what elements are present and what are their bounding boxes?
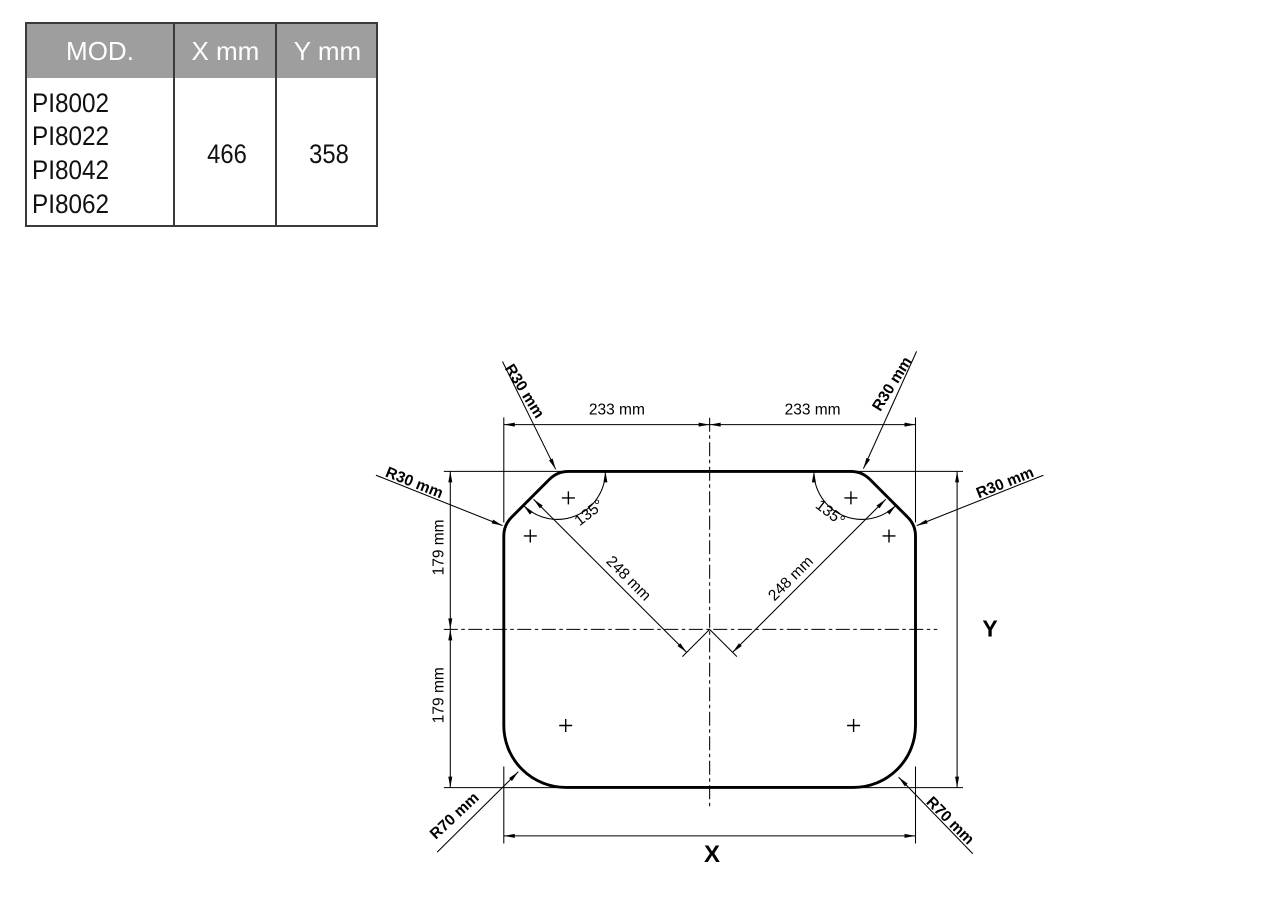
svg-text:X: X bbox=[704, 841, 720, 868]
svg-text:248 mm: 248 mm bbox=[765, 553, 817, 605]
svg-text:248 mm: 248 mm bbox=[603, 553, 655, 605]
svg-text:179 mm: 179 mm bbox=[430, 667, 447, 723]
svg-text:233 mm: 233 mm bbox=[785, 402, 841, 419]
svg-text:R70 mm: R70 mm bbox=[923, 794, 978, 849]
svg-text:Y: Y bbox=[982, 616, 997, 642]
svg-text:233 mm: 233 mm bbox=[589, 402, 645, 419]
svg-text:R30 mm: R30 mm bbox=[501, 361, 547, 421]
svg-text:R30 mm: R30 mm bbox=[974, 464, 1036, 502]
svg-text:135°: 135° bbox=[812, 497, 848, 530]
svg-text:R30 mm: R30 mm bbox=[383, 464, 445, 502]
svg-text:179 mm: 179 mm bbox=[430, 519, 447, 575]
svg-text:135°: 135° bbox=[572, 497, 608, 530]
